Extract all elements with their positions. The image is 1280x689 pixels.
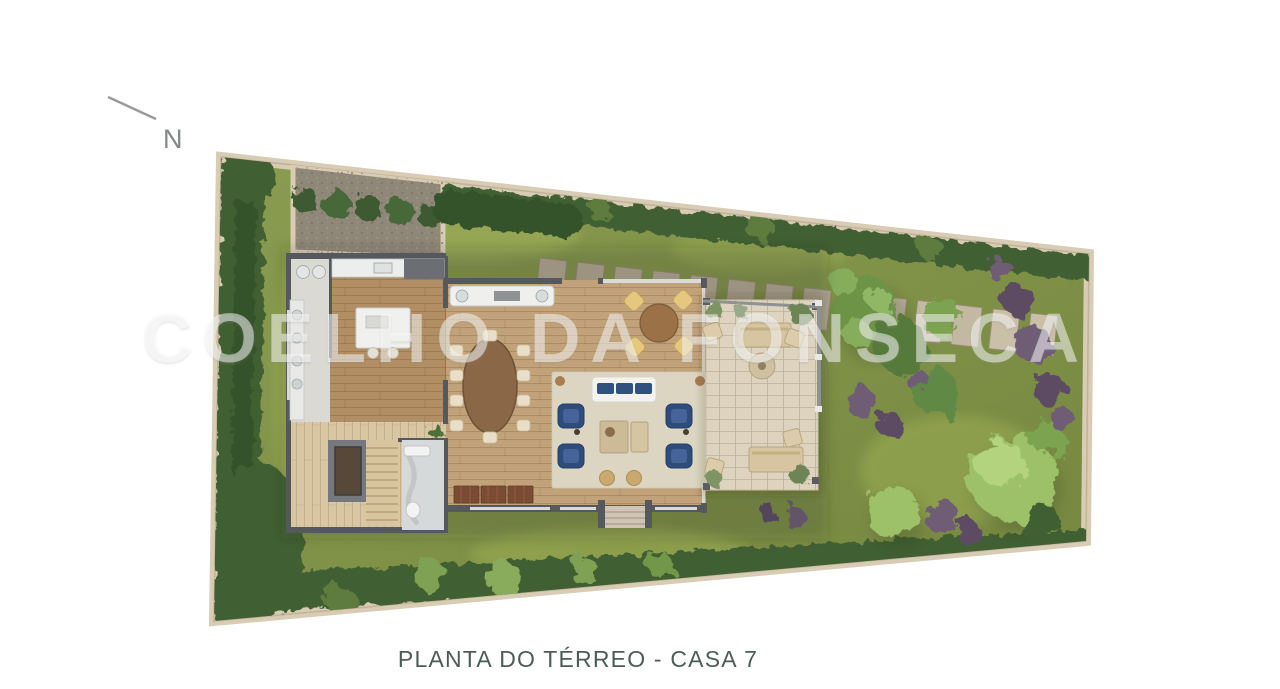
storage-bench xyxy=(454,486,533,503)
compass-needle xyxy=(108,97,156,119)
potted-plant xyxy=(429,425,443,439)
bathroom-sink xyxy=(404,446,430,456)
floor-plan-render: COELHO DA FONSECA xyxy=(0,0,1280,689)
plan-caption: PLANTA DO TÉRREO - CASA 7 xyxy=(0,646,1156,673)
north-compass xyxy=(108,97,156,119)
pouf xyxy=(627,471,642,486)
kitchen-sink xyxy=(374,263,392,273)
floor-plan-page: COELHO DA FONSECA N PLANTA DO TÉRREO - C… xyxy=(0,0,1280,689)
watermark-text: COELHO DA FONSECA xyxy=(142,299,1087,377)
pouf xyxy=(600,471,615,486)
toilet xyxy=(406,502,420,518)
stairs xyxy=(366,440,398,526)
coffee-table xyxy=(631,422,648,452)
coffee-table xyxy=(600,421,628,453)
cooktop-counter xyxy=(404,259,444,279)
compass-label: N xyxy=(163,124,183,155)
